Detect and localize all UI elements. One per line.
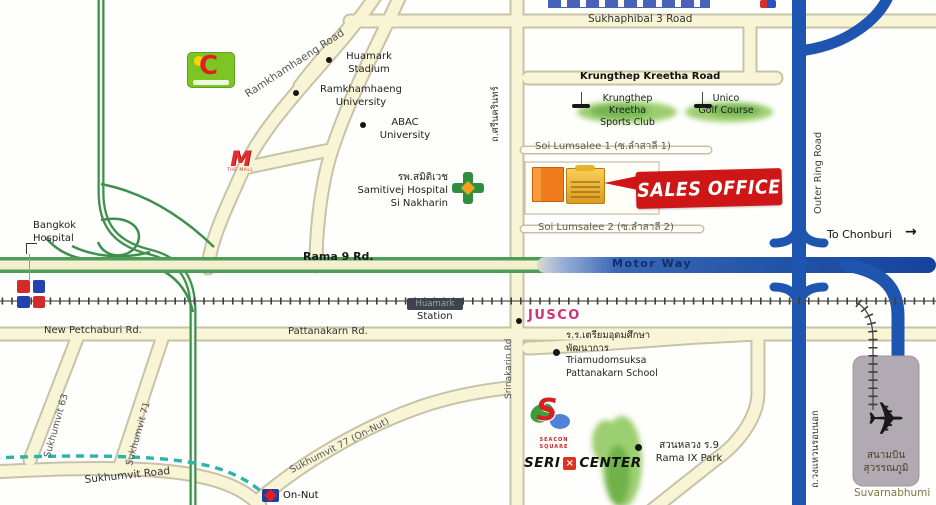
- project-building-logo: [566, 168, 605, 204]
- place-label-unico-golf: Unico Golf Course: [686, 93, 766, 117]
- place-label-huamark-stadium: Huamark Stadium: [341, 51, 397, 77]
- road-label-soi-lumsalee1: Soi Lumsalee 1 (ซ.ลำสาลี 1): [535, 141, 671, 154]
- connector-line: [29, 254, 30, 280]
- place-label-pattanakarn-school: ร.ร.เตรียมอุดมศึกษา พัฒนาการ Triamudomsu…: [566, 330, 658, 380]
- seri-center-logo: SERI × CENTER: [524, 455, 642, 471]
- place-label-rama9-park: สวนหลวง ร.9 Rama IX Park: [646, 440, 732, 466]
- road-label-pattanakarn: Pattanakarn Rd.: [288, 326, 368, 339]
- sales-office-banner: SALES OFFICE: [636, 168, 783, 209]
- place-label-on-nut: On-Nut: [283, 490, 319, 503]
- bullet-icon: [360, 122, 366, 128]
- location-map: Sukhaphibal 3 Road Ramkhamhaeng Road Kru…: [0, 0, 936, 505]
- seri-text: SERI: [524, 455, 560, 471]
- bracket-line: [26, 243, 37, 254]
- seri-x-icon: ×: [563, 457, 576, 470]
- seacon-letter: S: [536, 396, 558, 426]
- big-c-banner: [193, 80, 229, 85]
- road-label-rama9: Rama 9 Rd.: [303, 250, 374, 264]
- road-label-srinakarin-en: Srinakarin Rd: [504, 339, 516, 399]
- the-mall-text: THE MALL: [227, 169, 253, 173]
- road-label-new-petchaburi: New Petchaburi Rd.: [44, 325, 142, 338]
- place-label-bangkok-hospital: Bangkok Hospital: [33, 220, 76, 246]
- place-label-airport-thai: สนามบิน สุวรรณภูมิ: [853, 450, 919, 476]
- road-label-to-chonburi: To Chonburi: [827, 228, 892, 242]
- place-label-jusco: JUSCO: [528, 308, 581, 325]
- place-label-suvarnabhumi: Suvarnabhumi: [854, 487, 930, 500]
- road-label-outer-ring-en: Outer Ring Road: [813, 132, 826, 214]
- airplane-icon: ✈: [856, 396, 916, 442]
- place-label-abac-university: ABAC University: [372, 117, 438, 143]
- arrow-right-icon: →: [905, 224, 917, 242]
- sales-office-label: SALES OFFICE: [637, 176, 781, 202]
- place-label-ramkhamhaeng-university: Ramkhamhaeng University: [305, 84, 417, 110]
- road-label-srinakarin-th: ถ.ศรีนครินทร์: [490, 86, 502, 142]
- on-nut-station-icon: [262, 489, 279, 502]
- cropped-top-watermark: [548, 0, 710, 8]
- building-icon: [532, 167, 564, 202]
- bullet-icon: [326, 57, 332, 63]
- place-label-station: Station: [417, 311, 453, 324]
- cropped-top-watermark-icon: [760, 0, 776, 8]
- huamark-station-highlight: Huamark: [407, 298, 463, 310]
- place-label-sports-club: Krungthep Kreetha Sports Club: [585, 93, 670, 129]
- road-label-krungthep-kreetha: Krungthep Kreetha Road: [580, 71, 720, 84]
- seacon-square-logo: S SEACON SQUARE: [528, 396, 580, 454]
- callout-arrow-icon: [604, 176, 638, 190]
- samitivej-cross-icon: [451, 171, 485, 205]
- road-label-motorway: Motor Way: [612, 257, 692, 271]
- seacon-text: SEACON SQUARE: [528, 437, 580, 451]
- road-label-sukhaphibal3: Sukhaphibal 3 Road: [588, 13, 692, 26]
- bangkok-hospital-logo: [17, 280, 45, 308]
- road-label-soi-lumsalee2: Soi Lumsalee 2 (ซ.ลำสาลี 2): [538, 222, 674, 235]
- big-c-logo: C: [187, 52, 235, 88]
- bullet-icon: [553, 349, 560, 356]
- bullet-icon: [635, 444, 642, 451]
- bullet-icon: [516, 318, 522, 324]
- road-label-outer-ring-th: ถ.วงแหวนรอบนอก: [810, 410, 822, 488]
- big-c-letter: C: [199, 53, 218, 79]
- place-label-samitivej-hospital: รพ.สมิติเวช Samitivej Hospital Si Nakhar…: [330, 172, 448, 210]
- bullet-icon: [293, 90, 299, 96]
- center-text: CENTER: [579, 455, 641, 471]
- the-mall-logo: M THE MALL: [227, 150, 253, 173]
